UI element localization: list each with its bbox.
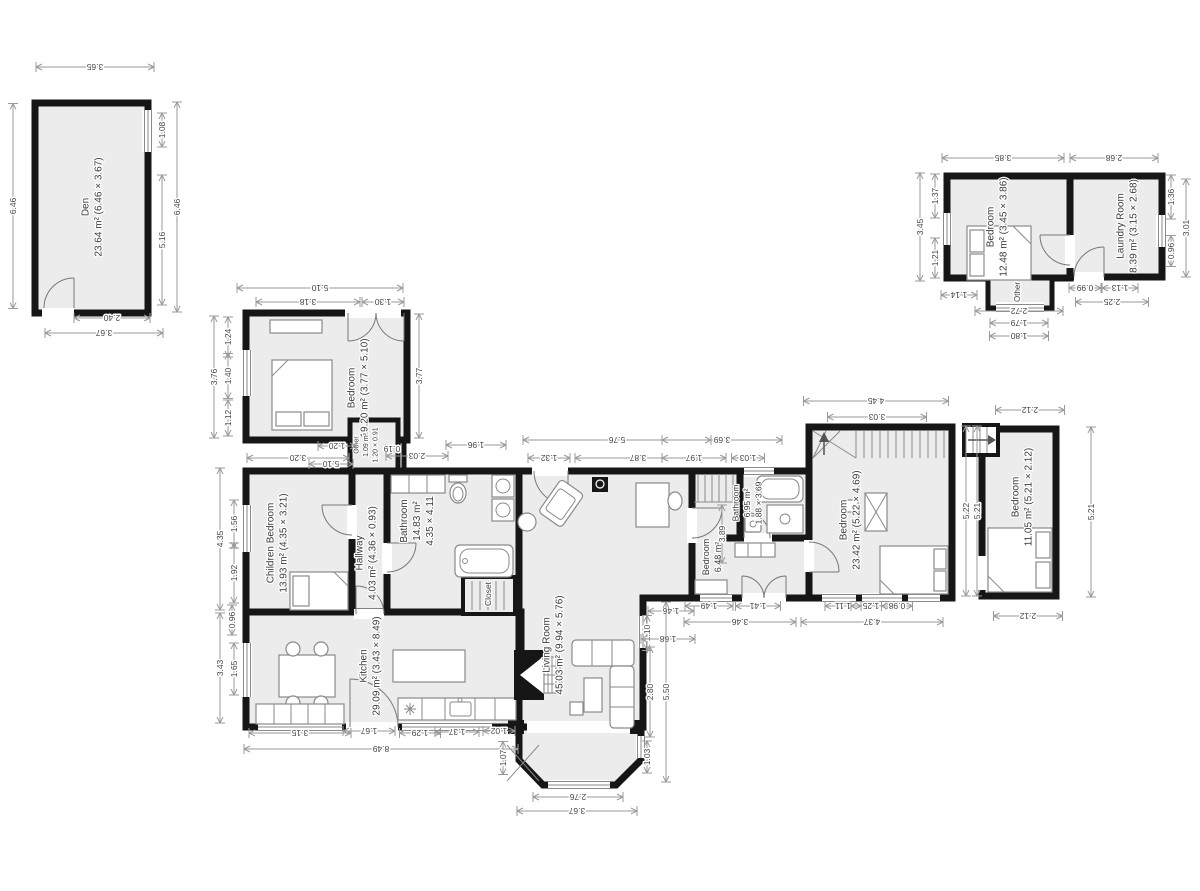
svg-text:Bathroom14.83 m²4.35 × 4.11: Bathroom14.83 m²4.35 × 4.11 — [399, 496, 436, 546]
shelf — [735, 543, 775, 557]
svg-text:2.03: 2.03 — [408, 451, 425, 461]
dimension-label: 1.40 — [223, 354, 233, 399]
dimension-label: 3.77 — [414, 314, 424, 438]
dimension-label: 1.03 — [732, 453, 765, 463]
svg-text:3.45: 3.45 — [915, 218, 925, 235]
kitchen-appliance-counter — [398, 698, 516, 720]
svg-text:1.03: 1.03 — [739, 453, 756, 463]
svg-text:1.20: 1.20 — [328, 441, 345, 451]
svg-text:2.76: 2.76 — [569, 792, 586, 802]
shower — [767, 505, 803, 533]
svg-text:1.68: 1.68 — [659, 634, 676, 644]
svg-text:1.14: 1.14 — [950, 290, 967, 300]
svg-text:3.69: 3.69 — [713, 435, 730, 445]
dimension-label: 1.79 — [990, 318, 1048, 328]
svg-text:3.43: 3.43 — [215, 659, 225, 676]
svg-text:1.24: 1.24 — [223, 328, 233, 345]
svg-text:3.18: 3.18 — [299, 297, 316, 307]
svg-text:1.37: 1.37 — [930, 187, 940, 204]
dimension-label: 1.12 — [223, 400, 233, 436]
dimension-label: 3.43 — [215, 613, 225, 723]
dimension-label: 2.12 — [994, 611, 1063, 621]
svg-text:2.68: 2.68 — [1105, 153, 1122, 163]
svg-text:1.13: 1.13 — [1111, 283, 1128, 293]
svg-text:2.12: 2.12 — [1021, 405, 1038, 415]
cabinet — [695, 580, 727, 594]
room-label-other-top-right: Other — [1013, 282, 1022, 302]
svg-text:2.72: 2.72 — [1010, 306, 1027, 316]
dimension-label: 1.32 — [528, 453, 570, 463]
dresser — [270, 320, 322, 333]
dimension-label: 1.24 — [223, 317, 233, 357]
svg-text:1.30: 1.30 — [374, 297, 391, 307]
dimension-label: 1.96 — [446, 440, 506, 450]
dimension-label: 1.97 — [662, 453, 726, 463]
dimension-label: 1.92 — [229, 543, 239, 603]
svg-text:1.29: 1.29 — [411, 728, 428, 738]
window — [241, 350, 252, 396]
window — [744, 466, 774, 477]
svg-text:3.67: 3.67 — [568, 806, 585, 816]
dimension-label: 1.56 — [229, 500, 239, 548]
dimension-label: 3.69 — [662, 435, 782, 445]
dimension-label: 4.35 — [215, 468, 225, 610]
dimension-label: 2.76 — [533, 792, 623, 802]
dimension-label: 0.99 — [1069, 283, 1101, 293]
dimension-label: 4.45 — [804, 396, 949, 406]
dimension-label: 0.96 — [1166, 236, 1176, 267]
svg-text:1.02: 1.02 — [490, 726, 507, 736]
svg-text:5.22: 5.22 — [961, 502, 971, 519]
floor-plan: Den23.64 m² (6.46 × 3.67)Bedroom12.48 m²… — [0, 0, 1200, 891]
svg-text:8.49: 8.49 — [372, 744, 389, 754]
svg-text:0.96: 0.96 — [227, 611, 237, 628]
dimension-label: 3.76 — [209, 316, 219, 438]
svg-text:3.15: 3.15 — [291, 728, 308, 738]
svg-text:4.35: 4.35 — [215, 530, 225, 547]
room-label-bedroom-mid: Bedroom6.48 m² — [701, 539, 723, 576]
svg-text:4.45: 4.45 — [867, 396, 884, 406]
svg-text:3.20: 3.20 — [289, 453, 306, 463]
bathtub — [757, 476, 803, 502]
svg-text:1.96: 1.96 — [467, 440, 484, 450]
svg-text:1.08: 1.08 — [157, 121, 167, 138]
dimension-label: 2.12 — [996, 405, 1065, 415]
svg-text:2.80: 2.80 — [645, 683, 655, 700]
dimension-label: 4.37 — [801, 617, 943, 627]
svg-text:1.36: 1.36 — [1166, 188, 1176, 205]
window — [1156, 215, 1167, 247]
svg-text:3.03: 3.03 — [868, 412, 885, 422]
dimension-label: 3.67 — [517, 806, 637, 816]
svg-text:1.65: 1.65 — [229, 660, 239, 677]
window — [241, 505, 252, 552]
dimension-label: 3.03 — [828, 412, 927, 422]
svg-text:1.12: 1.12 — [223, 409, 233, 426]
window — [142, 110, 153, 152]
dimension-label: 0.96 — [227, 605, 237, 635]
entry-steps — [964, 425, 998, 455]
living-bay — [519, 727, 641, 785]
svg-text:1.49: 1.49 — [700, 601, 717, 611]
toilet-icon — [449, 475, 467, 503]
svg-text:1.07: 1.07 — [498, 749, 508, 766]
kitchen-island — [393, 650, 465, 682]
dimension-label: 5.50 — [661, 602, 671, 782]
dimension-label: 1.07 — [498, 742, 508, 775]
window — [941, 213, 952, 245]
dimension-label: 3.45 — [915, 173, 925, 281]
svg-text:1.03: 1.03 — [642, 748, 652, 765]
svg-text:0.99: 0.99 — [1076, 283, 1093, 293]
svg-text:5.21: 5.21 — [972, 502, 982, 519]
dimension-label: 2.68 — [1070, 153, 1158, 163]
bed — [272, 360, 332, 430]
window — [548, 780, 610, 791]
window — [241, 643, 252, 697]
svg-text:1.46: 1.46 — [662, 606, 679, 616]
svg-text:2.40: 2.40 — [103, 313, 120, 323]
bathroom-cabinets — [391, 475, 445, 493]
dimension-label: 3.65 — [36, 62, 154, 72]
svg-text:1.92: 1.92 — [229, 564, 239, 581]
svg-text:0.98: 0.98 — [888, 601, 905, 611]
dimension-label: 8.49 — [244, 744, 518, 754]
svg-text:4.37: 4.37 — [863, 617, 880, 627]
bed — [988, 528, 1052, 592]
svg-text:3.67: 3.67 — [95, 328, 112, 338]
dimension-label: 6.46 — [8, 104, 18, 309]
fireplace — [514, 650, 560, 700]
dimension-label: 3.46 — [684, 617, 796, 627]
dimension-label: 3.85 — [942, 153, 1064, 163]
svg-text:5.50: 5.50 — [661, 683, 671, 700]
dimension-label: 3.67 — [45, 328, 163, 338]
svg-text:0.96: 0.96 — [1166, 242, 1176, 259]
svg-text:3.76: 3.76 — [209, 368, 219, 385]
svg-text:3.77: 3.77 — [414, 367, 424, 384]
svg-text:1.37: 1.37 — [448, 727, 465, 737]
kitchen-counter — [256, 704, 344, 724]
dimension-label: 1.21 — [930, 238, 940, 278]
svg-text:3.65: 3.65 — [86, 62, 103, 72]
wood-stove — [592, 477, 608, 492]
svg-text:5.16: 5.16 — [157, 231, 167, 248]
svg-text:1.97: 1.97 — [685, 453, 702, 463]
dimension-label: 6.46 — [172, 102, 182, 312]
dimension-label: 1.30 — [362, 297, 404, 307]
room-label-closet: Closet — [483, 581, 493, 606]
dimension-label: 1.80 — [990, 331, 1049, 341]
svg-text:1.21: 1.21 — [930, 249, 940, 266]
svg-text:5.76: 5.76 — [608, 435, 625, 445]
dimension-label: 1.65 — [229, 643, 239, 695]
svg-text:3.46: 3.46 — [731, 617, 748, 627]
round-table — [518, 513, 536, 531]
dimension-label: 5.21 — [1086, 427, 1096, 597]
dimension-label: 1.08 — [157, 113, 167, 147]
dimension-label: 3.18 — [256, 297, 360, 307]
svg-text:3.89: 3.89 — [717, 525, 727, 542]
svg-text:5.10: 5.10 — [322, 459, 339, 469]
svg-text:2.25: 2.25 — [1103, 297, 1120, 307]
bed — [290, 572, 348, 610]
bed — [880, 546, 948, 594]
svg-text:6.46: 6.46 — [172, 198, 182, 215]
dimension-label: 1.36 — [1166, 175, 1176, 219]
svg-text:3.01: 3.01 — [1181, 219, 1191, 236]
svg-text:Other: Other — [1013, 282, 1022, 302]
dimension-label: 1.13 — [1102, 283, 1138, 293]
svg-text:1.11: 1.11 — [835, 601, 851, 611]
dimension-label: 5.16 — [157, 175, 167, 305]
svg-text:1.41: 1.41 — [749, 601, 766, 611]
svg-text:1.32: 1.32 — [540, 453, 557, 463]
svg-text:6.46: 6.46 — [8, 197, 18, 214]
svg-text:5.21: 5.21 — [1086, 503, 1096, 520]
svg-text:1.25: 1.25 — [862, 601, 879, 611]
bathtub — [455, 545, 513, 577]
svg-text:1.80: 1.80 — [1010, 331, 1027, 341]
svg-text:1.67: 1.67 — [360, 726, 377, 736]
svg-text:Bedroom6.48 m²: Bedroom6.48 m² — [701, 539, 723, 576]
dimension-label: 1.37 — [930, 174, 940, 218]
svg-text:3.87: 3.87 — [629, 453, 646, 463]
svg-text:1.40: 1.40 — [223, 367, 233, 384]
svg-text:1.79: 1.79 — [1010, 318, 1027, 328]
svg-text:5.10: 5.10 — [311, 283, 328, 293]
svg-text:2.12: 2.12 — [1019, 611, 1036, 621]
svg-text:Closet: Closet — [483, 581, 493, 606]
dimension-label: 3.01 — [1181, 179, 1191, 277]
dimension-label: 2.25 — [1076, 297, 1149, 307]
dimension-label: 5.10 — [237, 283, 403, 293]
svg-text:1.56: 1.56 — [229, 515, 239, 532]
room-label-bathroom-main: Bathroom14.83 m²4.35 × 4.11 — [399, 496, 436, 546]
dimension-label: 1.14 — [941, 290, 977, 300]
svg-text:3.85: 3.85 — [994, 153, 1011, 163]
